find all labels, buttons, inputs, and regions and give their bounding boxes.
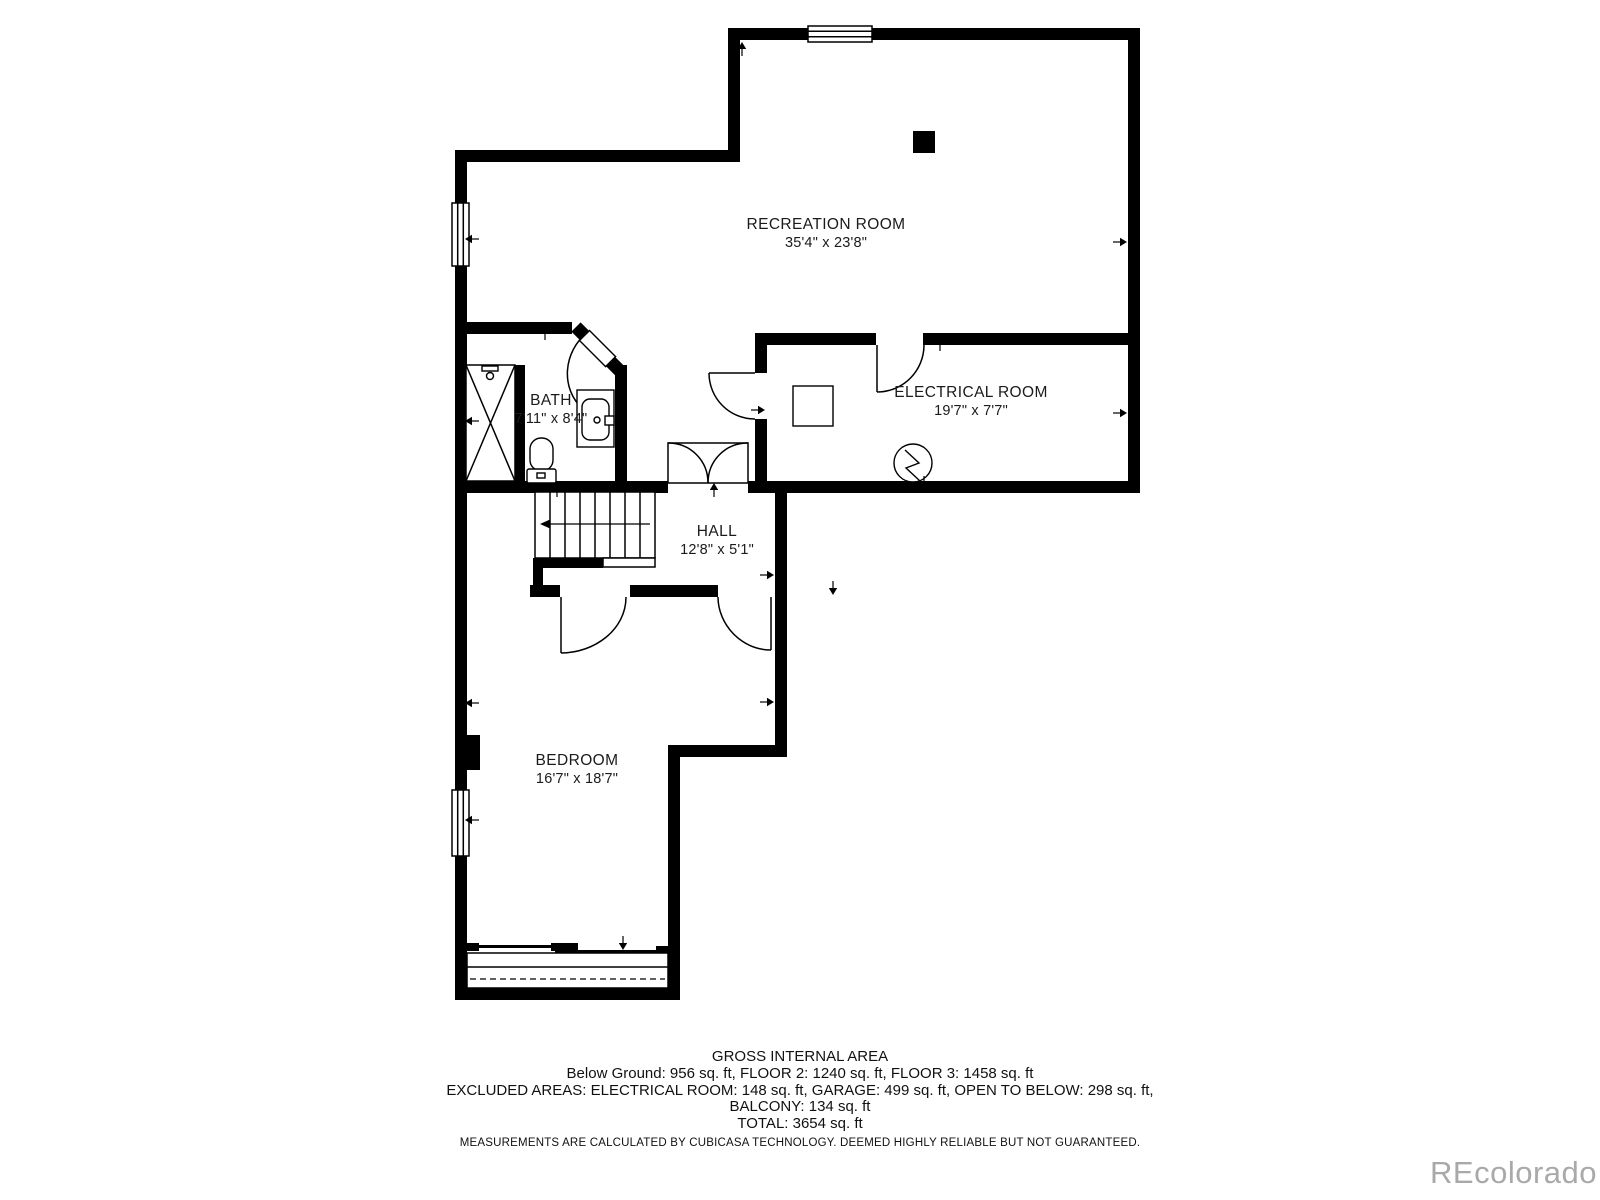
shower-head-icon — [482, 366, 498, 371]
patio-balcony — [467, 953, 668, 988]
window-recreation-left — [452, 203, 469, 266]
room-label-bath: BATH 7'11" x 8'4" — [515, 392, 588, 427]
room-dimensions: 7'11" x 8'4" — [515, 411, 588, 427]
door-bedroom-left — [561, 597, 626, 653]
window-bedroom-left — [452, 790, 469, 856]
room-dimensions: 16'7" x 18'7" — [536, 771, 619, 787]
room-dimensions: 19'7" x 7'7" — [894, 403, 1048, 419]
support-column — [913, 131, 935, 153]
electrical-meter-icon — [894, 444, 932, 482]
room-label-electrical: ELECTRICAL ROOM 19'7" x 7'7" — [894, 384, 1048, 419]
room-name: ELECTRICAL ROOM — [894, 384, 1048, 402]
excluded-areas-line2: BALCONY: 134 sq. ft — [0, 1099, 1600, 1116]
recolorado-watermark: REcolorado — [1430, 1155, 1597, 1191]
shower — [466, 365, 515, 481]
room-label-recreation: RECREATION ROOM 35'4" x 23'8" — [747, 216, 906, 251]
room-label-hall: HALL 12'8" x 5'1" — [680, 523, 754, 558]
measurement-disclaimer: MEASUREMENTS ARE CALCULATED BY CUBICASA … — [0, 1136, 1600, 1151]
room-name: HALL — [680, 523, 754, 541]
door-electrical-left — [709, 373, 755, 419]
floor-areas-line: Below Ground: 956 sq. ft, FLOOR 2: 1240 … — [0, 1066, 1600, 1083]
area-summary: GROSS INTERNAL AREA Below Ground: 956 sq… — [0, 1049, 1600, 1151]
support-pillar — [456, 735, 480, 770]
room-dimensions: 12'8" x 5'1" — [680, 542, 754, 558]
room-dimensions: 35'4" x 23'8" — [747, 235, 906, 251]
floor-plan-page: RECREATION ROOM 35'4" x 23'8" ELECTRICAL… — [0, 0, 1600, 1200]
room-label-bedroom: BEDROOM 16'7" x 18'7" — [536, 752, 619, 787]
stairs — [535, 492, 655, 567]
room-name: RECREATION ROOM — [747, 216, 906, 234]
gross-internal-area-title: GROSS INTERNAL AREA — [0, 1049, 1600, 1066]
excluded-areas-line: EXCLUDED AREAS: ELECTRICAL ROOM: 148 sq.… — [0, 1083, 1600, 1100]
door-bedroom-right — [718, 597, 771, 650]
toilet — [527, 438, 556, 483]
double-door-hall — [668, 443, 748, 483]
floor-plan-drawing — [0, 0, 1600, 1200]
window-recreation-top — [808, 26, 872, 42]
total-area-line: TOTAL: 3654 sq. ft — [0, 1116, 1600, 1133]
electrical-panel — [793, 386, 833, 426]
room-name: BEDROOM — [536, 752, 619, 770]
room-name: BATH — [515, 392, 588, 410]
